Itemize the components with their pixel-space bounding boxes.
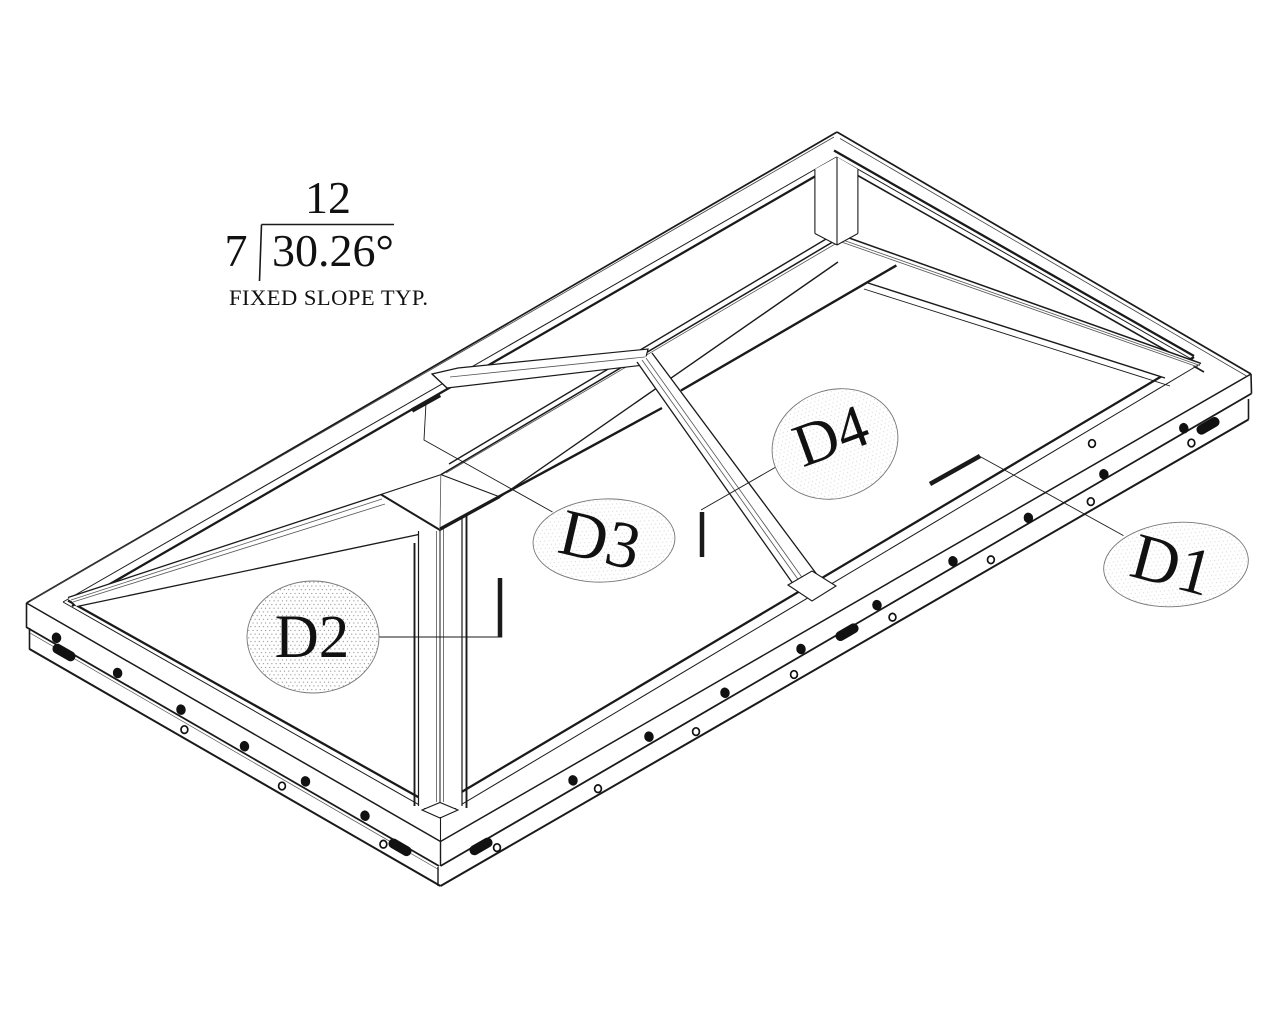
svg-text:30.26°: 30.26°	[272, 225, 394, 276]
svg-text:12: 12	[305, 172, 351, 223]
svg-text:7: 7	[225, 225, 248, 276]
svg-text:FIXED SLOPE TYP.: FIXED SLOPE TYP.	[229, 285, 429, 310]
svg-text:D2: D2	[275, 604, 350, 671]
